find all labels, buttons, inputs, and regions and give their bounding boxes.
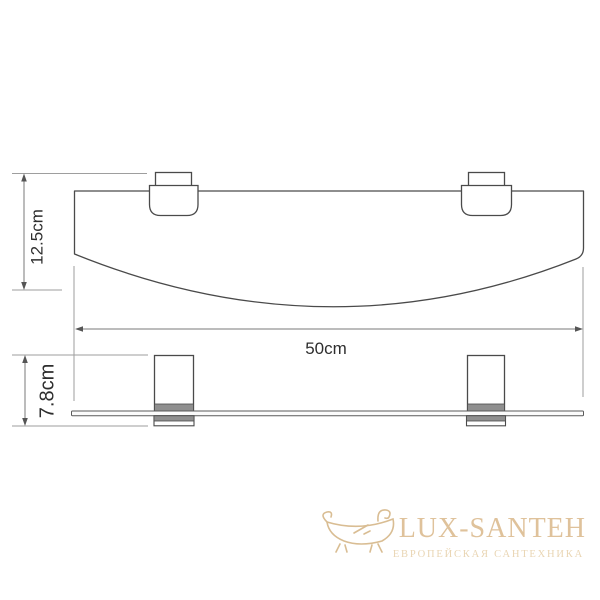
bathtub-icon (323, 510, 394, 552)
arrowhead-down (22, 418, 28, 426)
arrowhead-up (21, 174, 27, 182)
product-drawing-page: 12.5cm 50cm (0, 0, 600, 600)
brand-logo: LUX-SANTEH ЕВРОПЕЙСКАЯ САНТЕХНИКА (323, 510, 586, 560)
bracket-left-clamp-top (155, 404, 194, 411)
bracket-right-wallplate (469, 173, 505, 187)
bracket-right-upper (468, 356, 505, 412)
top-view (75, 173, 584, 307)
arrowhead-left (75, 326, 83, 332)
bracket-left-body (150, 186, 199, 216)
arrowhead-up (22, 355, 28, 363)
dimension-width-label: 50cm (305, 339, 347, 358)
bracket-left-upper (155, 356, 194, 412)
bracket-right-clamp-top (468, 404, 505, 411)
bracket-right-lower-clamp (467, 416, 506, 426)
dimension-depth-label: 12.5cm (27, 209, 46, 265)
bracket-right-front-view (468, 356, 505, 412)
bracket-left-front-view (155, 356, 194, 412)
bracket-right-top-view (462, 173, 512, 216)
glass-shelf-front (72, 411, 584, 416)
dimension-height-label: 7.8cm (36, 364, 58, 418)
arrowhead-right (575, 326, 583, 332)
bracket-left-top-view (150, 173, 199, 216)
arrowhead-down (21, 282, 27, 290)
clamp-band (154, 416, 194, 421)
brand-name: LUX-SANTEH (399, 513, 586, 544)
clamp-band (467, 416, 506, 421)
technical-drawing: 12.5cm 50cm (0, 0, 600, 600)
bracket-left-wallplate (156, 173, 192, 187)
brand-tagline: ЕВРОПЕЙСКАЯ САНТЕХНИКА (393, 548, 584, 560)
bracket-left-lower-clamp (154, 416, 194, 426)
bracket-right-body (462, 186, 512, 216)
front-view (72, 356, 584, 426)
